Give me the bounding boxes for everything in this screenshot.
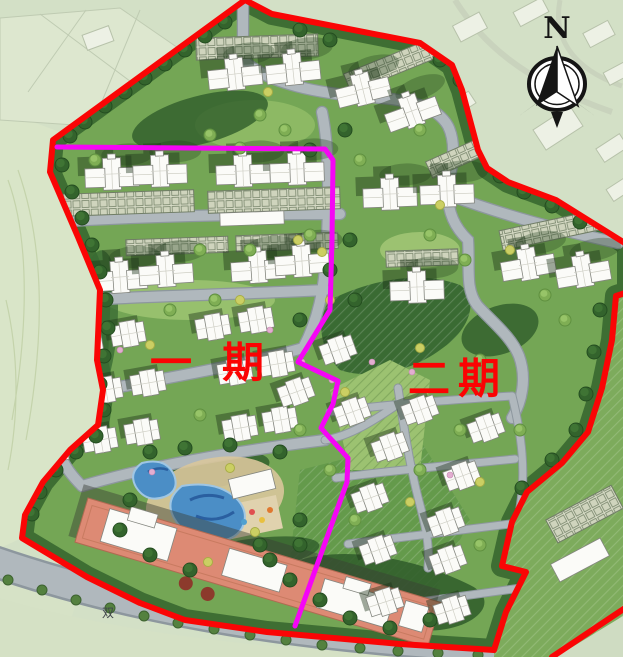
tree <box>539 289 551 301</box>
tree <box>194 244 206 256</box>
tree <box>283 573 297 587</box>
street-tree <box>139 611 149 621</box>
tree <box>313 593 327 607</box>
tree <box>423 613 437 627</box>
tree <box>454 424 466 436</box>
tree <box>253 538 267 552</box>
tree <box>293 513 307 527</box>
tree <box>294 424 306 436</box>
shrub <box>251 528 260 537</box>
tree <box>343 611 357 625</box>
tree <box>194 409 206 421</box>
tree <box>85 238 99 252</box>
tree <box>223 438 237 452</box>
tree <box>569 423 583 437</box>
tree <box>143 445 157 459</box>
tree <box>293 23 307 37</box>
tree <box>459 254 471 266</box>
street-tree <box>71 595 81 605</box>
shrub <box>226 464 235 473</box>
shrub <box>318 248 327 257</box>
tree <box>164 304 176 316</box>
tree <box>254 109 266 121</box>
pool-small <box>133 462 176 499</box>
shrub <box>294 236 303 245</box>
tree <box>75 211 89 225</box>
tree <box>89 154 101 166</box>
shrub <box>264 88 273 97</box>
street-tree <box>355 643 365 653</box>
tree <box>323 33 337 47</box>
slab-building <box>220 211 284 226</box>
site-plan-map: N 一期 二期 双 <box>0 0 623 657</box>
tree <box>348 293 362 307</box>
tree <box>55 158 69 172</box>
shrub <box>476 478 485 487</box>
street-tree <box>3 575 13 585</box>
tree <box>414 464 426 476</box>
tree <box>263 553 277 567</box>
tree <box>178 441 192 455</box>
tree <box>559 314 571 326</box>
tree <box>123 493 137 507</box>
tree <box>279 124 291 136</box>
tree <box>424 229 436 241</box>
tree <box>324 464 336 476</box>
flower-shrub <box>149 469 155 475</box>
master-plan-screenshot: N 一期 二期 双 <box>0 0 623 657</box>
tree <box>304 229 316 241</box>
tree <box>101 321 115 335</box>
flower-shrub <box>369 359 375 365</box>
shrub <box>506 246 515 255</box>
parking-grid <box>208 187 341 214</box>
tree <box>209 294 221 306</box>
tree <box>183 563 197 577</box>
street-tree <box>393 646 403 656</box>
tree <box>204 129 216 141</box>
shrub <box>204 558 213 567</box>
tree <box>349 514 361 526</box>
tree <box>414 124 426 136</box>
road-name-label: 双 <box>102 606 114 620</box>
phase-2-label: 二期 <box>408 354 508 403</box>
tree <box>354 154 366 166</box>
tree <box>293 313 307 327</box>
tree <box>587 345 601 359</box>
shrub <box>341 388 350 397</box>
tree <box>244 244 256 256</box>
phase-1-label: 一期 <box>150 338 294 387</box>
shrub <box>416 344 425 353</box>
street-tree <box>37 585 47 595</box>
flower-shrub <box>447 472 453 478</box>
shrub <box>436 201 445 210</box>
shrub <box>406 498 415 507</box>
shrub <box>236 296 245 305</box>
tree <box>514 424 526 436</box>
flower-shrub <box>267 327 273 333</box>
tree <box>293 538 307 552</box>
tree <box>579 387 593 401</box>
compass-north-label: N <box>543 11 570 46</box>
street-tree <box>317 640 327 650</box>
tree <box>273 445 287 459</box>
flower-shrub <box>117 347 123 353</box>
tree <box>65 185 79 199</box>
tree <box>113 523 127 537</box>
tree <box>343 233 357 247</box>
tree <box>593 303 607 317</box>
tree <box>143 548 157 562</box>
tree <box>474 539 486 551</box>
tree <box>338 123 352 137</box>
tree <box>383 621 397 635</box>
